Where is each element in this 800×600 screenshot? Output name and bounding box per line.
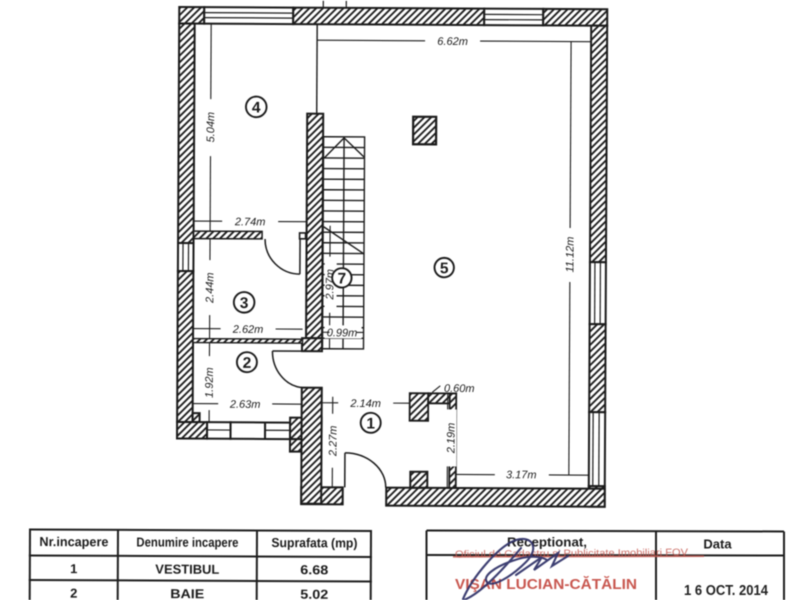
- svg-text:Data: Data: [703, 537, 732, 552]
- svg-text:5.04m: 5.04m: [205, 112, 217, 143]
- svg-text:2.62m: 2.62m: [232, 324, 264, 336]
- svg-text:VIŞAN LUCIAN-CĂTĂLIN: VIŞAN LUCIAN-CĂTĂLIN: [455, 576, 637, 593]
- svg-text:1 6 OCT. 2014: 1 6 OCT. 2014: [684, 583, 768, 599]
- svg-text:BAIE: BAIE: [170, 586, 204, 600]
- svg-text:11.12m: 11.12m: [564, 237, 576, 273]
- svg-text:2: 2: [243, 355, 252, 372]
- svg-text:Suprafata (mp): Suprafata (mp): [271, 535, 357, 550]
- svg-text:1: 1: [366, 415, 375, 432]
- svg-text:Denumire incapere: Denumire incapere: [136, 534, 238, 549]
- svg-text:2.63m: 2.63m: [229, 399, 261, 411]
- svg-text:2.74m: 2.74m: [234, 216, 266, 228]
- svg-text:Nr.incapere: Nr.incapere: [39, 534, 108, 549]
- svg-text:7: 7: [337, 271, 346, 288]
- svg-text:2.14m: 2.14m: [349, 398, 381, 410]
- svg-text:VESTIBUL: VESTIBUL: [155, 562, 219, 577]
- svg-text:1: 1: [70, 561, 77, 576]
- svg-text:6.62m: 6.62m: [437, 36, 468, 48]
- svg-text:6.68: 6.68: [300, 562, 328, 577]
- svg-text:0.99m: 0.99m: [327, 327, 358, 339]
- svg-text:5.02: 5.02: [300, 587, 328, 600]
- svg-text:2.19m: 2.19m: [445, 423, 457, 455]
- svg-text:3.17m: 3.17m: [506, 469, 537, 481]
- svg-text:2: 2: [70, 586, 77, 600]
- svg-text:5: 5: [440, 260, 449, 277]
- svg-text:4: 4: [252, 100, 261, 117]
- svg-text:0.60m: 0.60m: [444, 383, 475, 395]
- svg-text:3: 3: [240, 295, 249, 312]
- svg-text:Receptionat,: Receptionat,: [507, 535, 587, 550]
- svg-text:2.27m: 2.27m: [327, 425, 339, 457]
- svg-text:1.92m: 1.92m: [204, 367, 216, 398]
- svg-text:2.44m: 2.44m: [204, 272, 216, 304]
